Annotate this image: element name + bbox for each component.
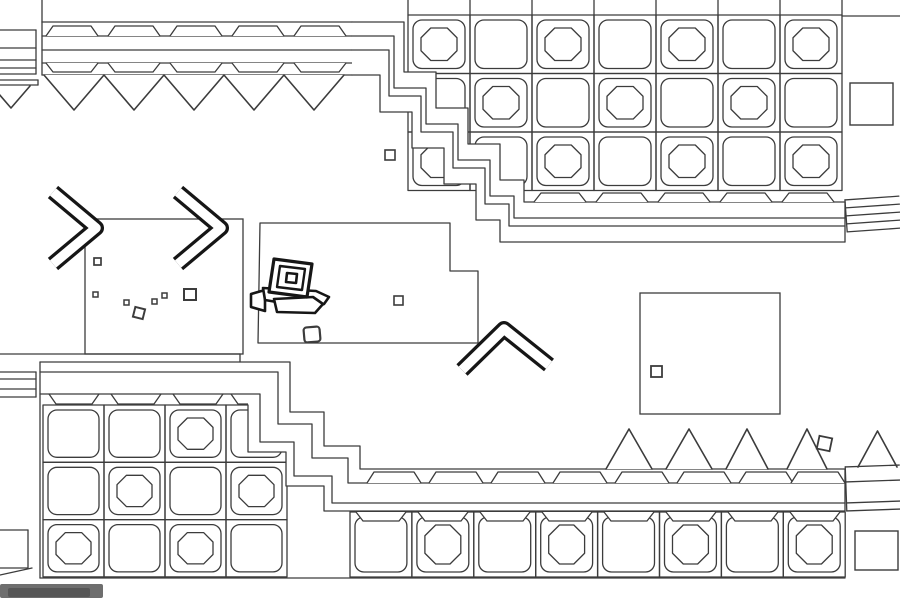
floor-spikes <box>606 429 827 469</box>
chevron-up <box>462 329 549 370</box>
decor-square-d <box>817 436 832 451</box>
decor-dots <box>93 258 196 319</box>
ceiling-notch-row <box>46 63 346 72</box>
chevron-right-1 <box>53 192 96 264</box>
left-top-stub <box>0 30 36 74</box>
lower-staircase <box>40 362 845 511</box>
bl-beam-notch-row <box>49 394 281 404</box>
left-partial-spike <box>0 86 30 108</box>
floor-spike-right <box>858 431 897 467</box>
decor-square-b <box>385 150 395 160</box>
player-ship-cube[interactable] <box>251 259 329 313</box>
lower-roof-line <box>0 354 240 362</box>
ceiling-bump-row <box>46 26 346 36</box>
block-row-bottom <box>350 512 845 577</box>
right-zone-outline <box>640 293 780 414</box>
right-edge-square-top <box>850 83 893 125</box>
ceiling-spikes <box>44 75 344 110</box>
right-edge-square-bottom <box>855 531 898 570</box>
left-thin-bar <box>0 80 38 85</box>
level-scene <box>0 0 900 600</box>
left-mid-stub <box>0 372 36 397</box>
cube-core <box>286 273 297 283</box>
decor-square-a <box>394 296 403 305</box>
left-low-stub <box>0 530 32 575</box>
corner-smudge <box>0 584 103 598</box>
game-viewport[interactable] <box>0 0 900 600</box>
floor-mini-block <box>303 326 320 342</box>
right-edge-stub-bottom <box>845 465 900 511</box>
under-grid-bump-row <box>534 193 834 202</box>
chevron-right-2 <box>178 192 221 264</box>
right-edge-stub-top <box>845 196 900 232</box>
decor-square-c <box>651 366 662 377</box>
ship-hull <box>274 297 323 313</box>
